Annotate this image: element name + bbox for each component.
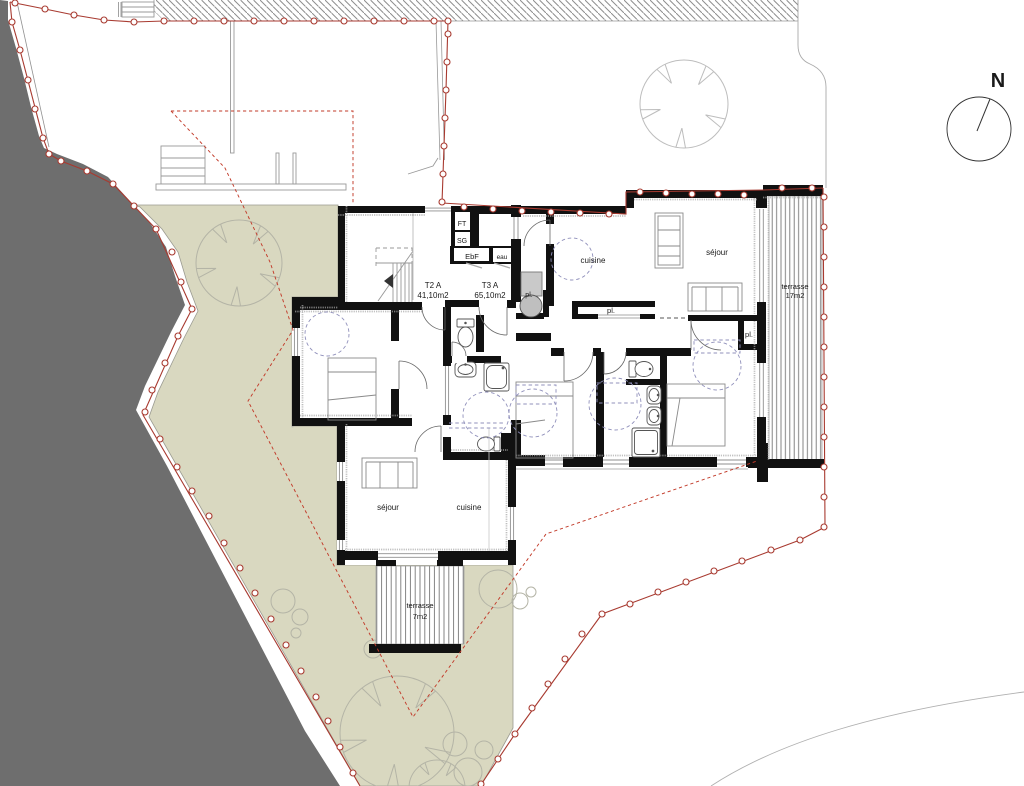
- svg-text:7m2: 7m2: [413, 612, 428, 621]
- svg-text:T2 A: T2 A: [425, 281, 442, 290]
- svg-text:pl.: pl.: [745, 330, 753, 339]
- svg-text:terrasse: terrasse: [406, 601, 433, 610]
- svg-text:EbF: EbF: [465, 252, 479, 261]
- svg-text:SG: SG: [457, 238, 467, 245]
- svg-text:41,10m2: 41,10m2: [417, 291, 449, 300]
- svg-text:65,10m2: 65,10m2: [474, 291, 506, 300]
- svg-text:séjour: séjour: [377, 503, 399, 512]
- svg-text:séjour: séjour: [706, 248, 728, 257]
- svg-text:cuisine: cuisine: [581, 256, 606, 265]
- svg-text:pl.: pl.: [525, 292, 532, 299]
- svg-text:17m2: 17m2: [786, 291, 805, 300]
- svg-text:N: N: [991, 70, 1005, 92]
- svg-text:cuisine: cuisine: [457, 503, 482, 512]
- svg-text:T3 A: T3 A: [482, 281, 499, 290]
- svg-text:terrasse: terrasse: [781, 282, 808, 291]
- svg-text:FT: FT: [458, 221, 467, 228]
- svg-text:eau: eau: [497, 254, 508, 261]
- svg-text:pl.: pl.: [607, 306, 615, 315]
